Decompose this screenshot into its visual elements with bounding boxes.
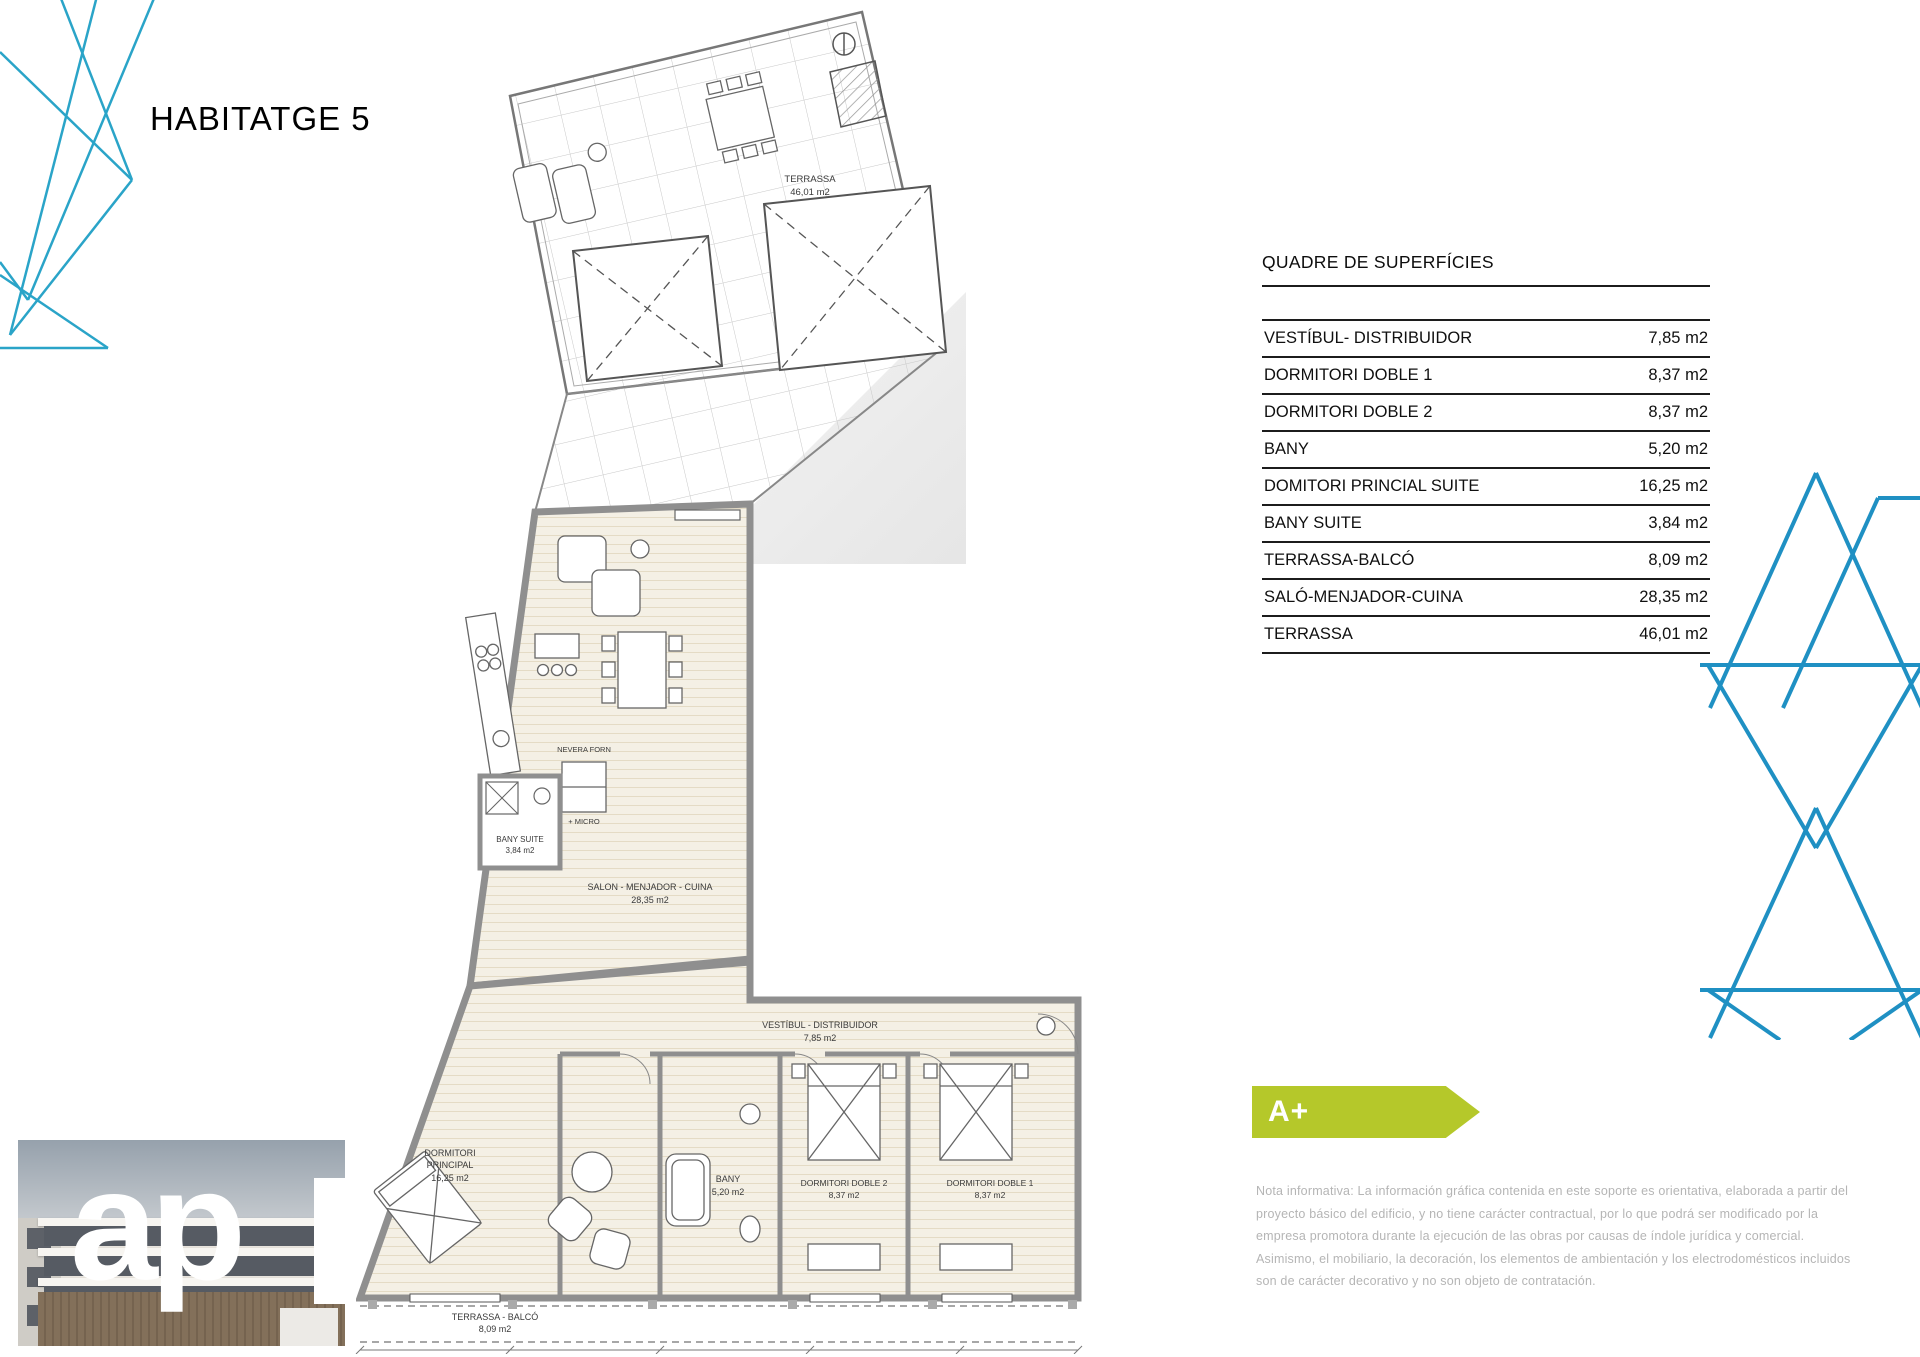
dimension-line (356, 1346, 1082, 1354)
bedroom-wing: VESTÍBUL - DISTRIBUIDOR 7,85 m2 DORMITOR… (360, 962, 1078, 1302)
bany-suite-room: BANY SUITE 3,84 m2 (480, 776, 560, 868)
bany-suite-label: BANY SUITE (496, 835, 543, 844)
terrace-area-value: 46,01 m2 (790, 187, 830, 198)
surface-row: DORMITORI DOBLE 2 8,37 m2 (1262, 393, 1710, 430)
living-label: SALON - MENJADOR - CUINA (587, 882, 712, 892)
surface-label: TERRASSA (1264, 625, 1353, 644)
energy-rating-badge: A+ (1252, 1086, 1480, 1138)
terrace-area: TERRASSA 46,01 m2 (503, 12, 946, 512)
doble1-area-value: 8,37 m2 (975, 1190, 1006, 1200)
surface-value: 5,20 m2 (1648, 440, 1708, 459)
surface-row: BANY 5,20 m2 (1262, 430, 1710, 467)
skylight-box-1 (573, 236, 722, 381)
balcony-label: TERRASSA - BALCÓ (452, 1312, 539, 1322)
legal-note: Nota informativa: La información gráfica… (1256, 1180, 1856, 1293)
hatched-grille (830, 61, 886, 127)
doble2-area-value: 8,37 m2 (829, 1190, 860, 1200)
bany-suite-area-value: 3,84 m2 (506, 846, 535, 855)
surface-value: 8,09 m2 (1648, 551, 1708, 570)
surface-value: 3,84 m2 (1648, 514, 1708, 533)
surfaces-table-spacer (1262, 287, 1710, 319)
dining-table (602, 632, 682, 708)
fridge-label: NEVERA FORN (557, 745, 611, 754)
principal-label-1: DORMITORI (424, 1148, 475, 1158)
hall-label: VESTÍBUL - DISTRIBUIDOR (762, 1020, 878, 1030)
surface-row: DORMITORI DOBLE 1 8,37 m2 (1262, 356, 1710, 393)
hall-area-value: 7,85 m2 (804, 1033, 837, 1043)
floor-plan: TERRASSA 46,01 m2 (330, 4, 1090, 1354)
photo-garage-door (280, 1308, 339, 1346)
bath-label: BANY (716, 1174, 741, 1184)
surface-label: TERRASSA-BALCÓ (1264, 551, 1414, 570)
surface-value: 8,37 m2 (1648, 366, 1708, 385)
terrace-label: TERRASSA (784, 174, 836, 185)
bath-area-value: 5,20 m2 (712, 1187, 745, 1197)
balcony-area-value: 8,09 m2 (479, 1324, 512, 1334)
doble2-label: DORMITORI DOBLE 2 (801, 1178, 888, 1188)
living-room: NEVERA FORN + MICRO SALON - MENJADOR - C… (466, 504, 750, 986)
surface-value: 7,85 m2 (1648, 329, 1708, 348)
blue-triangles-decoration-right (1700, 378, 1920, 1040)
brand-logo-partial-letter (314, 1178, 356, 1304)
fridge-oven-column (562, 762, 606, 812)
brand-logo: ap (70, 1146, 238, 1304)
surface-row: VESTÍBUL- DISTRIBUIDOR 7,85 m2 (1262, 319, 1710, 356)
surface-label: BANY SUITE (1264, 514, 1362, 533)
surface-label: DORMITORI DOBLE 2 (1264, 403, 1432, 422)
skylight-box-2 (764, 186, 946, 370)
kitchen-island (535, 634, 579, 676)
surface-row: SALÓ-MENJADOR-CUINA 28,35 m2 (1262, 578, 1710, 615)
energy-grade: A+ (1252, 1095, 1309, 1129)
surfaces-table-title: QUADRE DE SUPERFÍCIES (1262, 252, 1710, 287)
surface-row: TERRASSA 46,01 m2 (1262, 615, 1710, 654)
surface-label: BANY (1264, 440, 1309, 459)
doble1-label: DORMITORI DOBLE 1 (947, 1178, 1034, 1188)
surface-value: 16,25 m2 (1639, 477, 1708, 496)
principal-area-value: 16,25 m2 (431, 1173, 469, 1183)
principal-label-2: PRINCIPAL (427, 1160, 474, 1170)
living-area-value: 28,35 m2 (631, 895, 669, 905)
blue-lines-decoration-top-left (0, 0, 350, 380)
corridor-lamp (1037, 1017, 1055, 1035)
surface-value: 46,01 m2 (1639, 625, 1708, 644)
surface-label: SALÓ-MENJADOR-CUINA (1264, 588, 1463, 607)
building-photo: ap (18, 1140, 345, 1346)
surface-label: DORMITORI DOBLE 1 (1264, 366, 1432, 385)
surface-row: BANY SUITE 3,84 m2 (1262, 504, 1710, 541)
surface-value: 28,35 m2 (1639, 588, 1708, 607)
surface-row: DOMITORI PRINCIAL SUITE 16,25 m2 (1262, 467, 1710, 504)
surface-row: TERRASSA-BALCÓ 8,09 m2 (1262, 541, 1710, 578)
surface-value: 8,37 m2 (1648, 403, 1708, 422)
surface-label: VESTÍBUL- DISTRIBUIDOR (1264, 329, 1472, 348)
balcony-strip: TERRASSA - BALCÓ 8,09 m2 (356, 1300, 1082, 1354)
micro-label: + MICRO (568, 817, 600, 826)
surfaces-table: QUADRE DE SUPERFÍCIES VESTÍBUL- DISTRIBU… (1262, 252, 1710, 654)
surface-label: DOMITORI PRINCIAL SUITE (1264, 477, 1479, 496)
